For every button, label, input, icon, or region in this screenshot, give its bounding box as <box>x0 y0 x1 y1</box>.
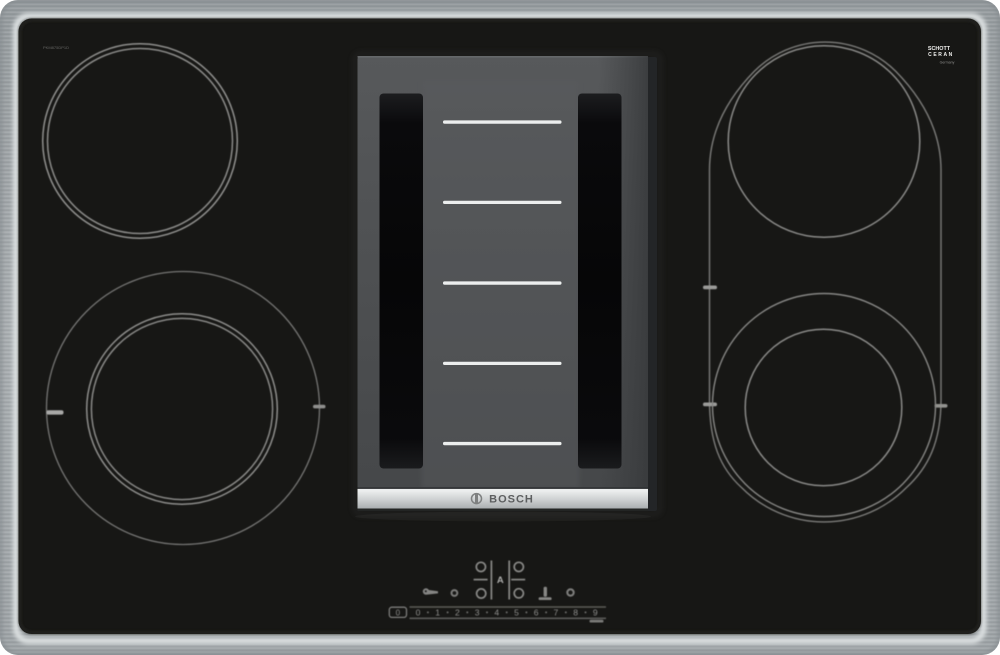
svg-text:CERAN: CERAN <box>928 52 954 58</box>
svg-text:A: A <box>497 575 504 586</box>
svg-text:0: 0 <box>416 608 421 618</box>
svg-text:8: 8 <box>573 608 578 618</box>
svg-text:1: 1 <box>435 608 440 618</box>
svg-text:Germany: Germany <box>940 61 955 65</box>
svg-text:BOSCH: BOSCH <box>489 494 534 506</box>
svg-text:5: 5 <box>514 608 519 618</box>
svg-text:4: 4 <box>494 608 499 618</box>
svg-text:SCHOTT: SCHOTT <box>928 46 951 52</box>
svg-text:3: 3 <box>475 608 480 618</box>
svg-text:2: 2 <box>455 608 460 618</box>
svg-text:6: 6 <box>534 608 539 618</box>
svg-text:PKM875DP1D: PKM875DP1D <box>43 45 69 50</box>
svg-text:7: 7 <box>554 608 559 618</box>
svg-text:9: 9 <box>593 608 598 618</box>
svg-text:0: 0 <box>396 608 401 617</box>
